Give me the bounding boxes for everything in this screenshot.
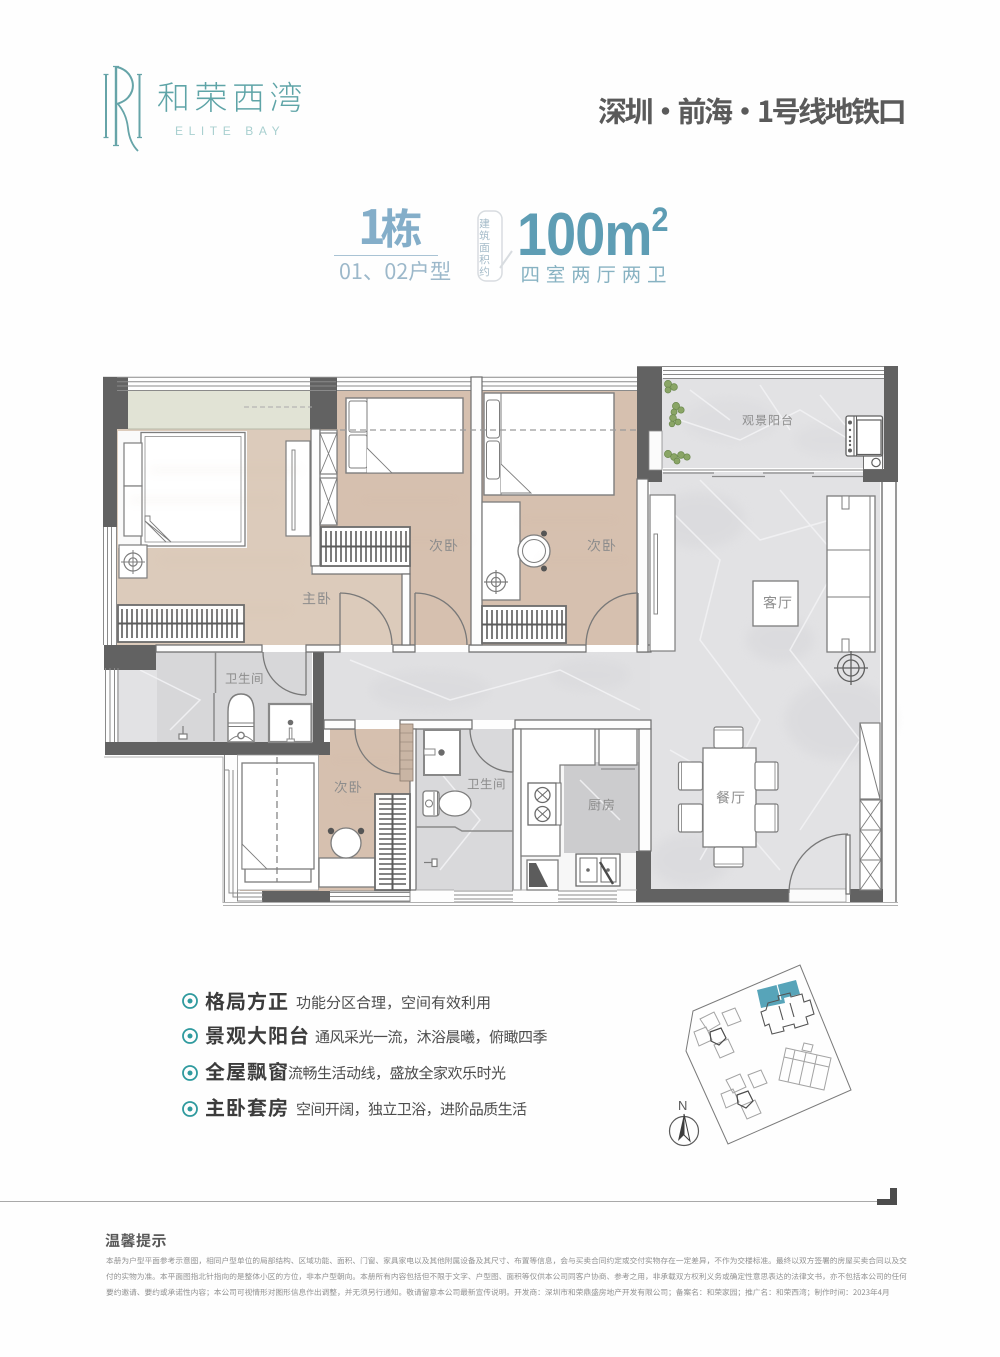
svg-text:N: N	[678, 1098, 687, 1113]
